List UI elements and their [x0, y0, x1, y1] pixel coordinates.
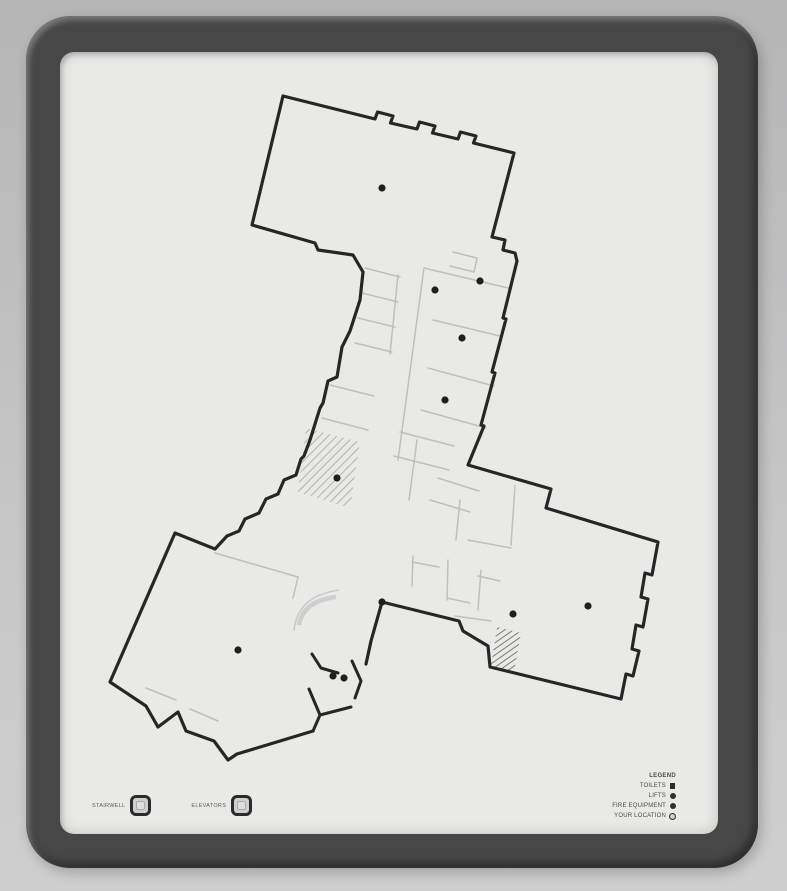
- marker-dot: [584, 602, 591, 609]
- legend-label: FIRE EQUIPMENT: [612, 802, 666, 810]
- marker-dot: [509, 610, 516, 617]
- legend-label: TOILETS: [640, 782, 666, 790]
- building-outline: [110, 96, 658, 760]
- footer-key-stairwell: STAIRWELL: [92, 795, 151, 816]
- rounded-square-icon: [231, 795, 252, 816]
- marker-dot: [378, 184, 385, 191]
- filled-circle-icon: [669, 793, 676, 800]
- filled-circle-icon: [669, 803, 676, 810]
- footer-key-label: STAIRWELL: [92, 803, 125, 809]
- marker-dot: [333, 474, 340, 481]
- wall: { "colors": { "wall": "#c4c4c5", "frame"…: [0, 0, 787, 891]
- legend: LEGEND TOILETS LIFTS FIRE EQUIPMENT YOUR…: [612, 773, 676, 820]
- sign-frame: STAIRWELL ELEVATORS LEGEND TOILETS LIFTS…: [26, 16, 758, 868]
- marker-layer: [234, 184, 591, 681]
- marker-dot: [234, 646, 241, 653]
- footer-key-elevators: ELEVATORS: [191, 795, 252, 816]
- floor-plan-svg: [60, 52, 718, 834]
- legend-title: LEGEND: [649, 773, 676, 779]
- legend-row: TOILETS: [640, 782, 676, 790]
- marker-dot: [431, 286, 438, 293]
- stairs-hatch: [298, 428, 521, 672]
- marker-dot: [329, 672, 336, 679]
- marker-dot: [340, 674, 347, 681]
- sign-panel: STAIRWELL ELEVATORS LEGEND TOILETS LIFTS…: [60, 52, 718, 834]
- marker-dot: [441, 396, 448, 403]
- curved-corridor: [299, 597, 336, 625]
- legend-row: YOUR LOCATION: [614, 812, 676, 820]
- legend-label: YOUR LOCATION: [614, 812, 666, 820]
- legend-row: LIFTS: [649, 792, 676, 800]
- kiosk-hexagon: [309, 654, 361, 731]
- rounded-square-icon: [130, 795, 151, 816]
- legend-row: FIRE EQUIPMENT: [612, 802, 676, 810]
- footer-keys: STAIRWELL ELEVATORS: [92, 795, 252, 816]
- footer-key-label: ELEVATORS: [191, 803, 226, 809]
- legend-label: LIFTS: [649, 792, 666, 800]
- open-circle-icon: [669, 813, 676, 820]
- filled-square-icon: [669, 783, 676, 790]
- marker-dot: [476, 277, 483, 284]
- marker-dot: [458, 334, 465, 341]
- marker-dot: [378, 598, 385, 605]
